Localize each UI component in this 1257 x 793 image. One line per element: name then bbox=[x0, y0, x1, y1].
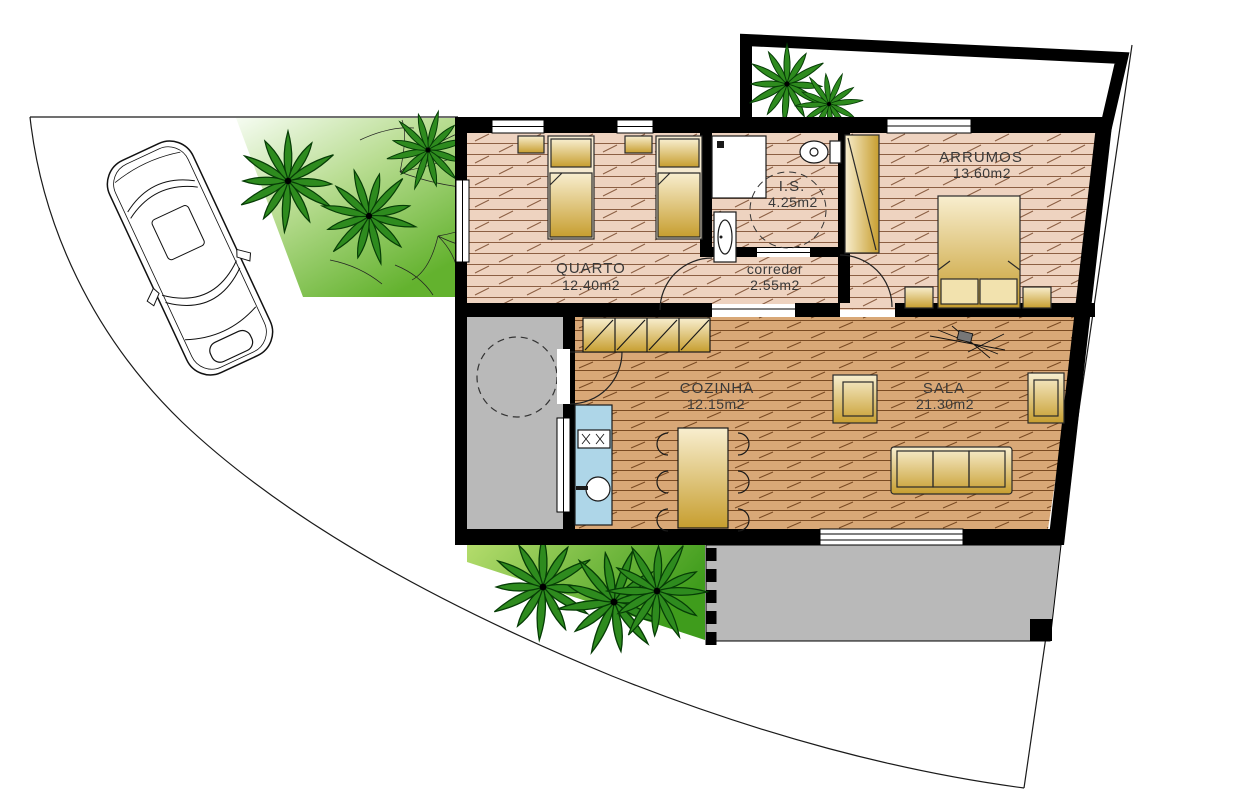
single-bed bbox=[548, 136, 594, 239]
floor-plan-drawing: QUARTO 12.40m2 I.S. 4.25m2 corredor 2.55… bbox=[0, 0, 1257, 793]
bedroom-side-window bbox=[456, 180, 469, 262]
nightstand bbox=[1023, 287, 1051, 308]
back-garden bbox=[467, 524, 724, 672]
back-patio bbox=[706, 545, 1061, 645]
entry-door-opening bbox=[557, 349, 570, 404]
area-corredor: 2.55m2 bbox=[750, 277, 800, 293]
bedroom-top-window-1 bbox=[492, 120, 544, 133]
label-quarto: QUARTO bbox=[556, 260, 626, 277]
armchair bbox=[833, 375, 877, 423]
toilet bbox=[800, 141, 841, 163]
kitchen-counter bbox=[575, 405, 612, 525]
label-corredor: corredor bbox=[747, 261, 803, 277]
sala-bottom-window bbox=[820, 529, 963, 545]
area-sala: 21.30m2 bbox=[916, 396, 974, 412]
kitchen-side-window bbox=[557, 418, 570, 512]
dining-table bbox=[678, 428, 728, 528]
arrumos-top-window bbox=[887, 119, 971, 133]
is-sliding-door bbox=[757, 248, 810, 257]
nightstand bbox=[625, 136, 652, 153]
kitchen-cabinets bbox=[583, 318, 710, 352]
side-patio bbox=[467, 317, 563, 529]
stove bbox=[578, 430, 610, 448]
armchair bbox=[1028, 373, 1064, 423]
nightstand bbox=[518, 136, 544, 153]
area-cozinha: 12.15m2 bbox=[687, 396, 745, 412]
wardrobe bbox=[845, 135, 879, 253]
bedroom-top-window-2 bbox=[617, 120, 653, 133]
label-sala: SALA bbox=[923, 380, 965, 397]
label-is: I.S. bbox=[779, 178, 806, 195]
sofa bbox=[891, 447, 1012, 494]
corridor-sliding-door bbox=[712, 304, 795, 315]
single-bed bbox=[656, 136, 702, 239]
label-cozinha: COZINHA bbox=[680, 380, 755, 397]
area-arrumos: 13.60m2 bbox=[953, 165, 1011, 181]
area-quarto: 12.40m2 bbox=[562, 277, 620, 293]
label-arrumos: ARRUMOS bbox=[939, 149, 1023, 166]
nightstand bbox=[905, 287, 933, 308]
double-bed bbox=[938, 196, 1020, 308]
floor-plan-canvas: QUARTO 12.40m2 I.S. 4.25m2 corredor 2.55… bbox=[0, 0, 1257, 793]
washbasin bbox=[714, 212, 736, 262]
area-is: 4.25m2 bbox=[768, 194, 818, 210]
